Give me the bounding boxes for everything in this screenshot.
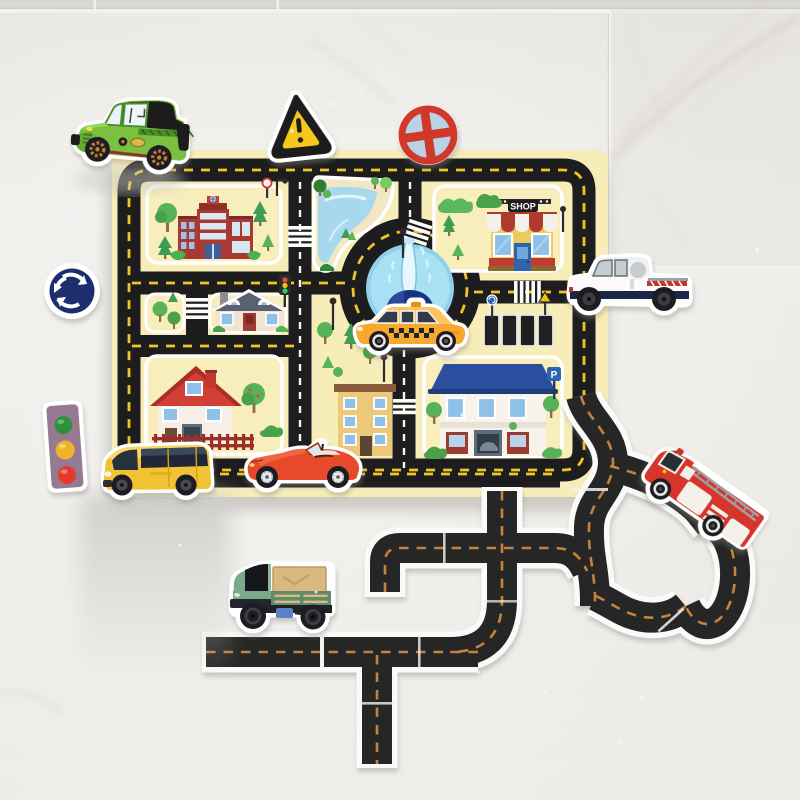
svg-text:P: P — [551, 370, 558, 381]
svg-text:SHOP: SHOP — [510, 202, 536, 212]
